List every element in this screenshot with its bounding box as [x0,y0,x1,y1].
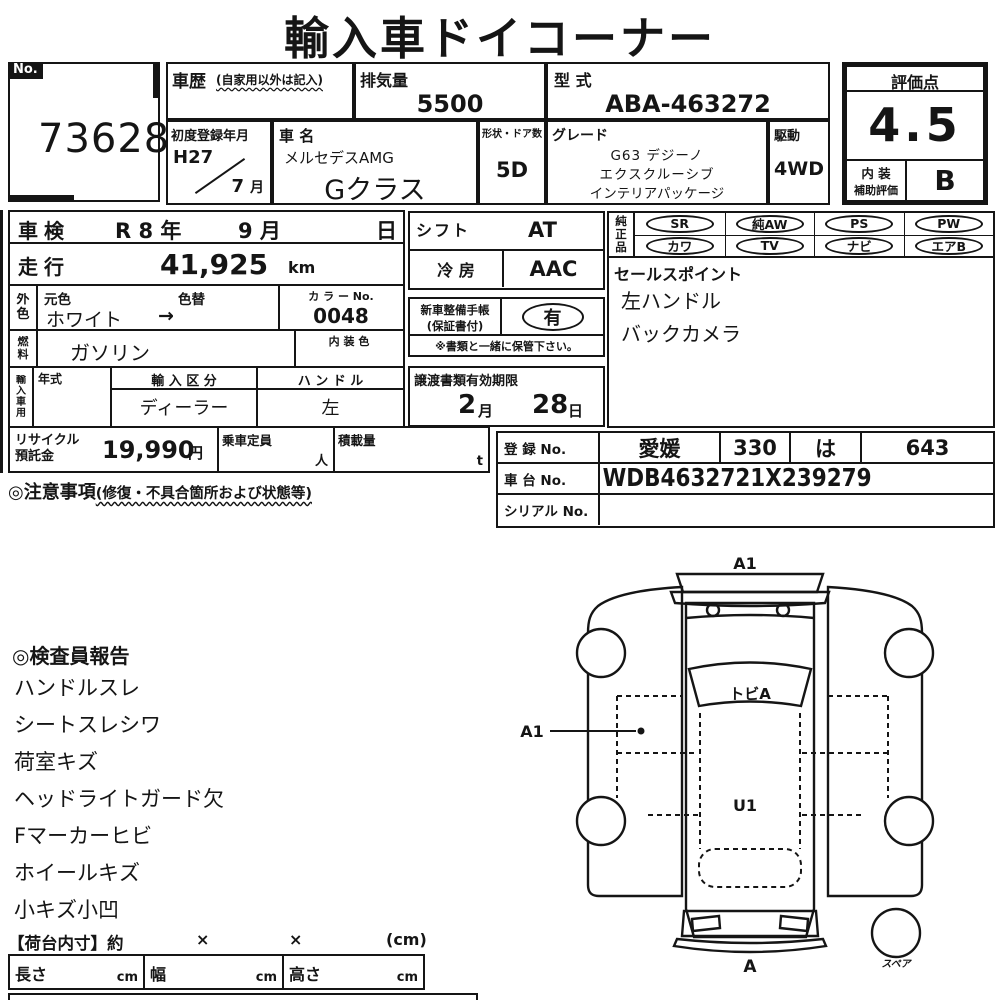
car-name-line1: メルセデスAMG [284,147,394,168]
inspector-report-heading: ◎検査員報告 [12,640,129,669]
sales-point-1: 左ハンドル [609,285,993,318]
body-doors-value: 5D [480,158,544,182]
transfer-month: 2 [458,390,476,420]
displacement-label: 排気量 [360,67,408,91]
fuel-label: 燃料 [17,336,30,361]
recycle-label-line1: リサイクル [15,433,79,449]
transfer-deadline-label: 譲渡書類有効期限 [414,370,518,389]
rear-damage-label: A [743,957,757,977]
registration-class: 330 [719,433,789,462]
color-change-arrow: → [158,305,174,327]
shift-label: シフト [416,217,470,241]
wheel-rear-right [885,797,933,845]
first-registration-box: 初度登録年月 H27 7 月 [166,120,272,205]
handle-label: ハ ン ド ル [258,368,403,390]
auction-number: 73628 [38,116,170,162]
genuine-parts-label: 純正品 [615,215,628,254]
report-item: ハンドルスレ [14,672,224,709]
model-code-box: 型 式 ABA-463272 [546,62,830,120]
cautions-label: ◎注意事項 [8,482,96,503]
exterior-color-value: ホワイト [46,305,122,332]
spare-tire-label: スペア [881,959,912,970]
report-item: ホイールキズ [14,857,224,894]
service-book-box: 新車整備手帳 (保証書付) 有 ※書類と一緒に保管下さい。 [408,297,605,357]
inspection-day: 日 [376,215,397,245]
registration-region: 愛媛 [600,433,719,462]
car-name-label: 車 名 [279,125,314,146]
shift-box: シフト AT 冷 房 AAC [408,211,605,290]
inspection-label: 車検 [18,215,70,244]
cargo-width-unit: cm [256,970,277,985]
fuel-row: 燃料 ガソリン 内 装 色 [8,329,405,368]
recycle-value: 19,990 [102,436,195,464]
load-unit: t [477,454,483,469]
recycle-label-line2: 預託金 [15,449,79,465]
report-item: 小キズ小凹 [14,894,224,931]
cargo-size-title: 【荷台内寸】約 [8,930,124,954]
genuine-parts-box: 純正品 SR 純AW PS PW カワ TV ナビ エアB [607,211,995,258]
ac-label: 冷 房 [410,251,504,287]
body-doors-box: 形状・ドア数 5D [478,120,546,205]
mileage-label: 走行 [18,251,70,280]
registration-no-label: 登 録 No. [498,433,600,462]
badge-navi: ナビ [825,237,893,255]
badge-tv: TV [736,237,804,255]
cargo-times-1: × [196,930,209,949]
rear-bumper-lip [674,939,826,952]
shift-value: AT [528,218,557,242]
inspection-year: R 8 年 [115,215,181,245]
drivetrain-label: 駆動 [774,125,800,144]
cargo-unit: (cm) [386,930,427,949]
cautions-heading: ◎注意事項(修復・不具合箇所および状態等) [8,478,312,504]
load-label: 積載量 [338,430,376,449]
page-title: 輸入車ドイコーナー [0,2,1000,67]
corner-mark [8,195,74,202]
cargo-height-label: 高さ [289,961,321,985]
car-name-line2: Gクラス [274,168,476,207]
service-book-value: 有 [522,303,584,331]
sales-points-box: セールスポイント 左ハンドル バックカメラ [607,256,995,428]
report-item: ヘッドライトガード欠 [14,783,224,820]
page-edge-line [0,210,3,473]
inspection-row: 車検 R 8 年 9 月 日 [8,210,405,244]
front-bumper [677,574,823,592]
history-label: 車歴 [172,67,206,92]
keep-documents-note: ※書類と一緒に保管下さい。 [410,336,603,355]
spare-tire [872,909,920,957]
tail-light-left [692,916,720,931]
inspector-report-list: ハンドルスレ シートスレシワ 荷室キズ ヘッドライトガード欠 Fマーカーヒビ ホ… [14,672,224,931]
chassis-no-value: WDB4632721X239279 [600,464,938,493]
color-no-label: カ ラ ー No. [280,286,402,304]
interior-label-line2: 補助評価 [847,182,905,198]
warranty-label: (保証書付) [410,318,500,334]
grade-line1: G63 デジーノ [548,144,766,164]
cargo-times-2: × [289,930,302,949]
cargo-height-unit: cm [397,970,418,985]
mileage-row: 走行 41,925 km [8,242,405,286]
report-item: Fマーカーヒビ [14,820,224,857]
first-registration-year: H27 [173,147,213,168]
sales-points-label: セールスポイント [609,258,993,285]
import-class-value: ディーラー [112,390,256,420]
chassis-no-label: 車 台 No. [498,464,600,493]
interior-grade: B [907,161,983,200]
drivetrain-value: 4WD [770,158,828,180]
registration-kana: は [789,433,860,462]
badge-leather: カワ [646,237,714,255]
import-class-label: 輸 入 区 分 [112,368,256,390]
first-registration-month: 7 [231,176,244,197]
mileage-unit: km [288,258,315,277]
serial-no-label: シリアル No. [498,495,600,525]
import-label: 輸入車用 [16,375,27,420]
vehicle-damage-diagram: A1 トビA A1 U1 [480,553,940,980]
color-change-label: 色替 [178,288,205,308]
interior-label-line1: 内 装 [847,163,905,182]
badge-sunroof: SR [646,215,714,233]
front-damage-label: A1 [733,554,757,573]
exterior-color-row: 外色 元色 色替 ホワイト → カ ラ ー No. 0048 [8,284,405,331]
corner-mark [153,62,160,98]
car-name-box: 車 名 メルセデスAMG Gクラス [272,120,478,205]
door-damage-pointer-dot [638,728,645,735]
hood-line [686,615,814,618]
badge-alloy-wheels: 純AW [736,215,804,233]
grade-label: グレード [552,125,608,145]
tail-light-right [780,916,808,931]
capacity-unit: 人 [315,450,328,469]
cargo-length-unit: cm [117,970,138,985]
history-note: (自家用以外は記入) [216,71,323,88]
badge-power-steering: PS [825,215,893,233]
displacement-box: 排気量 5500 [354,62,546,120]
score-box: 評価点 4.5 内 装 補助評価 B [842,62,988,205]
report-item: シートスレシワ [14,709,224,746]
mileage-value: 41,925 [160,248,268,281]
body-doors-label: 形状・ドア数 [482,125,542,140]
inspection-month: 9 月 [238,215,281,245]
transfer-deadline-box: 譲渡書類有効期限 2 月 28 日 [408,366,605,427]
car-body-outline [686,603,814,937]
grade-line2: エクスクルーシブ [548,163,766,183]
recycle-unit: 円 [188,442,203,463]
displacement-value: 5500 [356,90,544,118]
first-registration-month-unit: 月 [250,177,264,197]
service-book-label: 新車整備手帳 [410,302,500,318]
grade-box: グレード G63 デジーノ エクスクルーシブ インテリアパッケージ [546,120,768,205]
roof-damage-label: U1 [733,796,757,815]
capacity-label: 乗車定員 [222,430,272,449]
rear-bumper [682,911,818,936]
model-code-label: 型 式 [554,67,592,91]
exterior-color-label: 外色 [16,293,31,322]
grade-line3: インテリアパッケージ [548,182,766,202]
transfer-month-unit: 月 [478,400,493,421]
transfer-day-unit: 日 [568,400,583,421]
wheel-front-left [577,629,625,677]
cargo-size-table: 長さ cm 幅 cm 高さ cm [8,954,425,990]
model-code-value: ABA-463272 [548,90,828,118]
score-label: 評価点 [847,67,983,92]
serial-no-value [600,495,993,525]
registration-table: 登 録 No. 愛媛 330 は 643 車 台 No. WDB4632721X… [496,431,995,528]
sales-point-2: バックカメラ [609,318,993,351]
import-row: 輸入車用 年式 輸 入 区 分 ディーラー ハ ン ド ル 左 [8,366,405,428]
score-value: 4.5 [847,92,983,159]
door-damage-label: A1 [520,722,544,741]
badge-power-windows: PW [915,215,983,233]
report-item: 荷室キズ [14,746,224,783]
fuel-value: ガソリン [70,337,150,366]
drivetrain-box: 駆動 4WD [768,120,830,205]
wheel-rear-left [577,797,625,845]
handle-value: 左 [258,390,403,420]
wheel-front-right [885,629,933,677]
model-year-label: 年式 [38,370,62,387]
ac-value: AAC [504,251,603,287]
auction-no-box: No. 73628 [8,62,160,202]
recycle-row: リサイクル 預託金 19,990 円 乗車定員 人 積載量 t [8,426,490,473]
color-no-value: 0048 [280,304,402,328]
no-label: No. [8,62,43,79]
first-registration-label: 初度登録年月 [171,125,249,144]
registration-number: 643 [860,433,993,462]
windshield-damage-label: トビA [729,685,771,703]
rear-window [699,849,801,887]
history-box: 車歴 (自家用以外は記入) [166,62,354,120]
interior-color-label: 内 装 色 [296,331,402,349]
next-row-partial-box [8,993,478,1000]
badge-airbag: エアB [915,237,983,255]
transfer-day: 28 [532,390,568,420]
auction-sheet: 輸入車ドイコーナー No. 73628 車歴 (自家用以外は記入) 排気量 55… [0,0,1000,1000]
cargo-width-label: 幅 [150,961,166,985]
cargo-length-label: 長さ [15,961,47,985]
cautions-note: (修復・不具合箇所および状態等) [96,486,312,502]
